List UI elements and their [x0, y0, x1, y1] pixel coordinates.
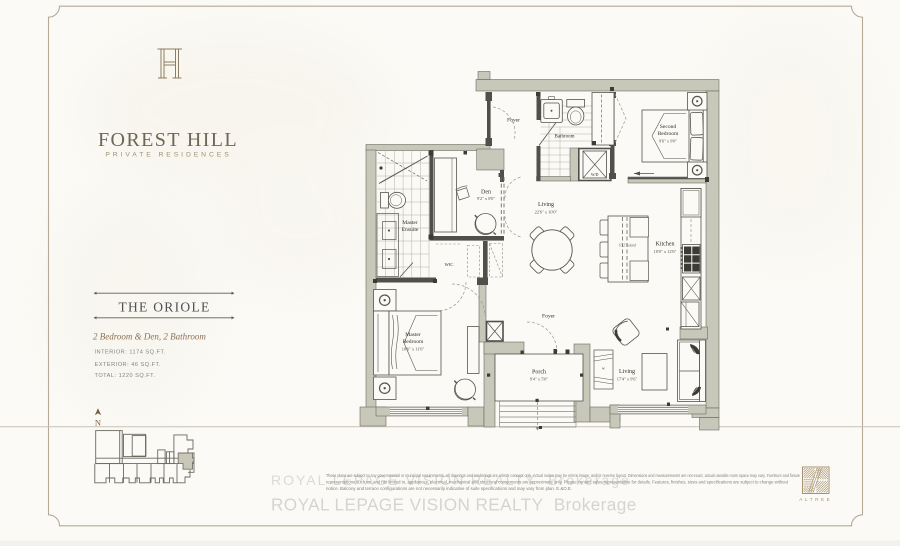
svg-text:notice. Balcony and terrace co: notice. Balcony and terrace configuratio…: [326, 486, 572, 491]
svg-text:Second: Second: [660, 124, 677, 130]
svg-text:ALTREE: ALTREE: [799, 497, 832, 502]
svg-text:representations such as, and n: representations such as, and not limited…: [326, 480, 789, 485]
svg-text:Living: Living: [538, 202, 554, 208]
svg-text:Living: Living: [619, 369, 635, 375]
svg-text:W/D: W/D: [591, 173, 599, 177]
svg-text:N: N: [95, 418, 101, 428]
svg-text:2 Bedroom & Den, 2 Bathroom: 2 Bedroom & Den, 2 Bathroom: [93, 332, 206, 342]
svg-text:WIC: WIC: [445, 262, 454, 267]
svg-text:Foyer: Foyer: [507, 118, 520, 124]
svg-text:Master: Master: [405, 332, 421, 338]
svg-text:6'x2'/island: 6'x2'/island: [619, 244, 637, 248]
svg-text:FOREST HILL: FOREST HILL: [98, 129, 238, 151]
svg-text:Ensuite: Ensuite: [402, 227, 419, 233]
svg-text:Bedroom: Bedroom: [403, 339, 424, 345]
svg-text:10'6" x 11'6": 10'6" x 11'6": [402, 347, 425, 352]
svg-text:Bathroom: Bathroom: [555, 135, 575, 140]
svg-text:w: w: [602, 366, 605, 371]
svg-text:10'0" x 12'6": 10'0" x 12'6": [654, 249, 677, 254]
svg-text:17'4" x 9'6": 17'4" x 9'6": [617, 377, 638, 382]
svg-text:22'6" x 10'0": 22'6" x 10'0": [535, 210, 558, 215]
svg-text:THE ORIOLE: THE ORIOLE: [118, 300, 210, 315]
svg-text:Bedroom: Bedroom: [658, 131, 679, 137]
svg-text:Porch: Porch: [532, 370, 546, 376]
svg-text:9'4" x 5'0": 9'4" x 5'0": [530, 377, 549, 382]
svg-text:Master: Master: [402, 220, 418, 226]
svg-text:ROYAL LEPAGE VISION REALTY Br: ROYAL LEPAGE VISION REALTY Brokerage: [271, 495, 637, 515]
svg-text:EXTERIOR: 46 SQ.FT.: EXTERIOR: 46 SQ.FT.: [95, 362, 161, 368]
svg-text:9'6" x 9'0": 9'6" x 9'0": [659, 139, 678, 144]
svg-text:Foyer: Foyer: [542, 314, 555, 320]
svg-text:9'2" x 8'0": 9'2" x 8'0": [477, 196, 496, 201]
svg-text:Kitchen: Kitchen: [656, 242, 675, 248]
svg-text:TOTAL: 1220 SQ.FT.: TOTAL: 1220 SQ.FT.: [95, 373, 156, 379]
svg-text:Den: Den: [481, 190, 491, 196]
svg-text:PRIVATE RESIDENCES: PRIVATE RESIDENCES: [105, 152, 231, 159]
svg-text:INTERIOR: 1174 SQ.FT.: INTERIOR: 1174 SQ.FT.: [95, 350, 166, 356]
svg-text:These plans are subject to any: These plans are subject to any governmen…: [326, 473, 800, 478]
